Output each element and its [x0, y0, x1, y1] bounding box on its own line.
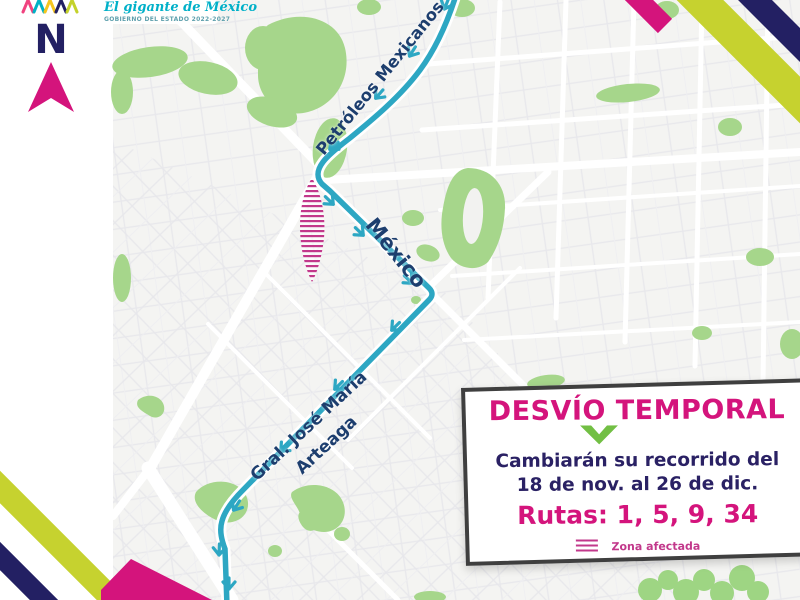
affected-zone-label: Zona afectada: [611, 540, 700, 554]
compass: N: [27, 20, 75, 112]
card-title: DESVÍO TEMPORAL: [467, 394, 800, 429]
brand-header: El gigante de México GOBIERNO DEL ESTADO…: [104, 0, 224, 23]
detour-map-poster: Petróleos Mexicanos México Gral. José Ma…: [0, 0, 800, 600]
brand-script-text: El gigante de México: [104, 0, 224, 15]
compass-north-label: N: [27, 20, 75, 60]
card-message-line2: 18 de nov. al 26 de dic.: [467, 472, 800, 498]
notice-card: DESVÍO TEMPORAL Cambiarán su recorrido d…: [461, 378, 800, 566]
card-routes-text: Rutas: 1, 5, 9, 34: [468, 499, 800, 530]
card-message-line1: Cambiarán su recorrido del: [467, 448, 800, 474]
brand-caption: GOBIERNO DEL ESTADO 2022-2027: [104, 16, 224, 23]
notice-card-content: DESVÍO TEMPORAL Cambiarán su recorrido d…: [467, 386, 800, 555]
card-legend: Zona afectada: [468, 538, 800, 555]
affected-zone-swatch-icon: [575, 539, 597, 554]
north-arrow-icon: [28, 62, 74, 112]
brand-logo: [23, 0, 77, 12]
down-chevron-icon: [579, 426, 619, 446]
